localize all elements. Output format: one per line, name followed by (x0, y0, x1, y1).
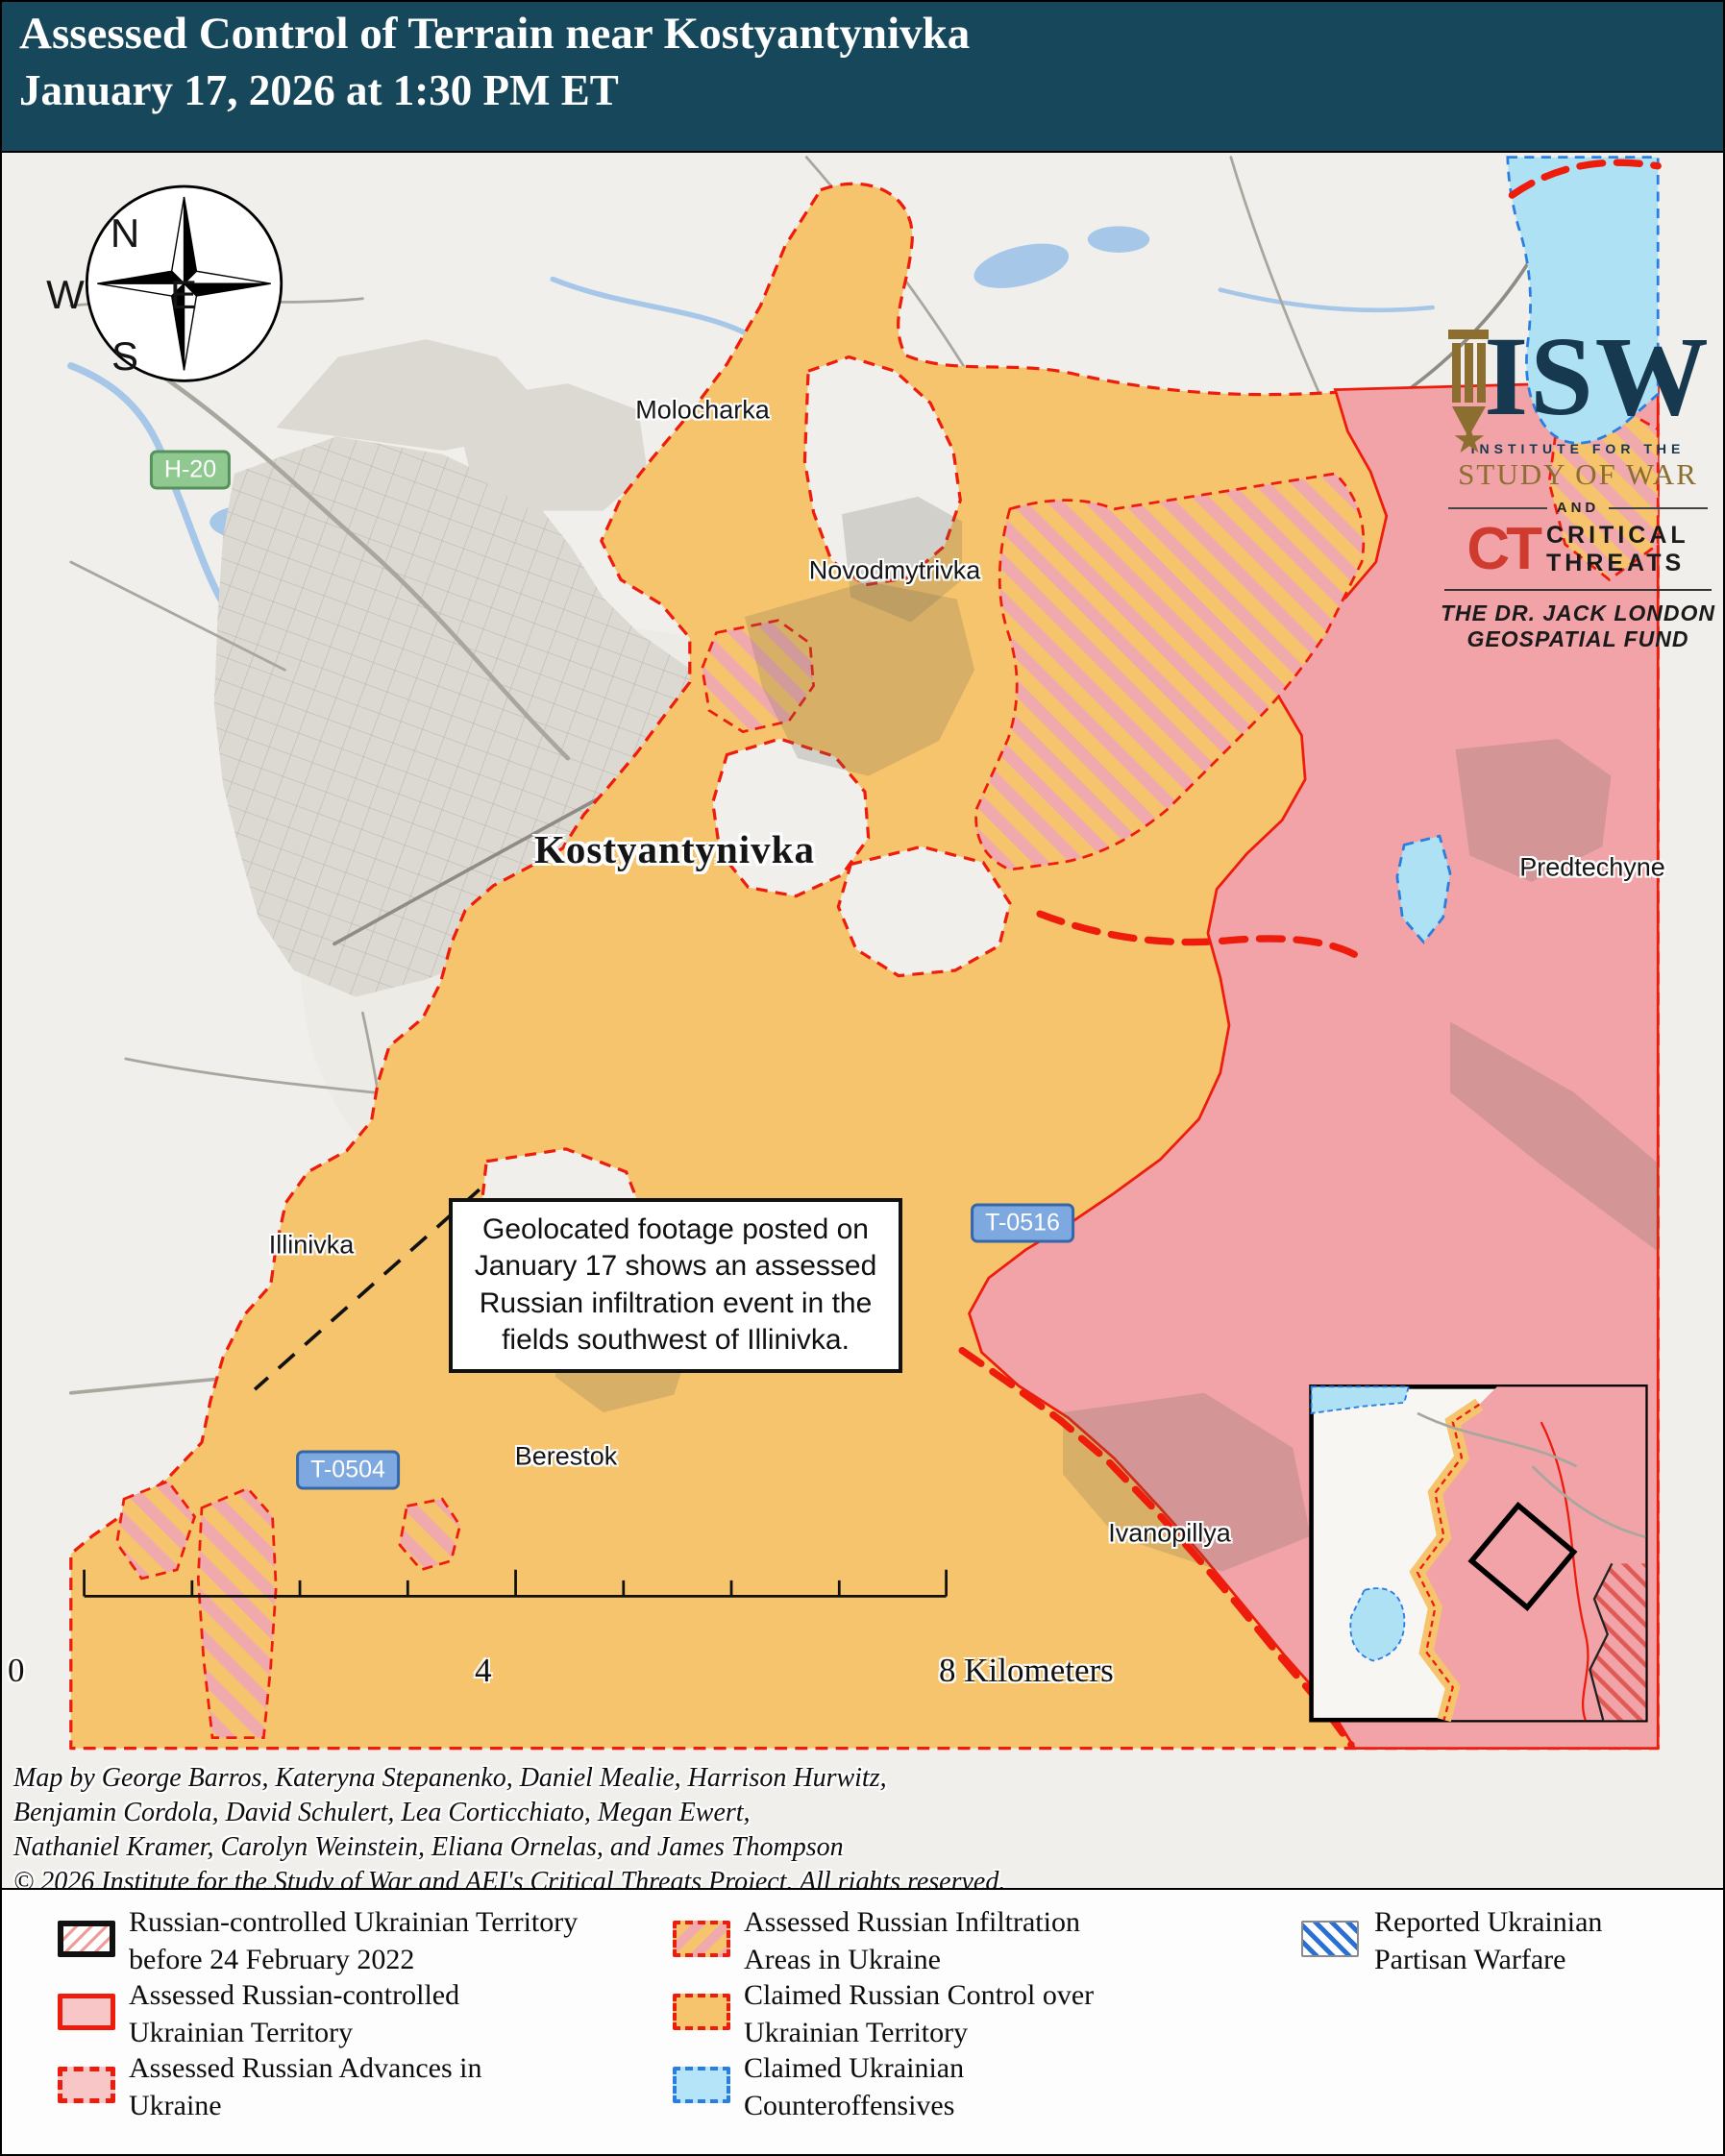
credit-line-2: Benjamin Cordola, David Schulert, Lea Co… (13, 1798, 751, 1828)
city-label-predtechyne: Predtechyne (1519, 853, 1665, 883)
legend-label-infiltration-areas: Assessed Russian Infiltration Areas in U… (744, 1903, 1147, 1978)
scale-zero: 0 (8, 1652, 25, 1690)
city-label-kostyantynivka: Kostyantynivka (534, 826, 815, 872)
legend-label-partisan-warfare: Reported Ukrainian Partisan Warfare (1374, 1903, 1701, 1978)
divider-line (1609, 507, 1708, 509)
legend-swatch-ukrainian-counteroffensives (673, 2067, 730, 2103)
road-badge-t0516: T-0516 (971, 1204, 1074, 1243)
divider-line (1448, 507, 1547, 509)
compass-west-label: W (46, 272, 85, 318)
map-title: Assessed Control of Terrain near Kostyan… (19, 8, 970, 60)
credit-line-1: Map by George Barros, Kateryna Stepanenk… (13, 1763, 887, 1794)
compass-south-label: S (111, 333, 138, 380)
divider-line (1444, 589, 1712, 591)
legend-label-pre2022-territory: Russian-controlled Ukrainian Territory b… (129, 1903, 580, 1978)
legend-swatch-russian-advances (58, 2067, 115, 2103)
legend-swatch-partisan-warfare (1301, 1921, 1359, 1957)
threats-text: THREATS (1546, 550, 1689, 577)
critical-threats-ct-icon: CT (1466, 523, 1539, 576)
legend-label-claimed-russian-control: Claimed Russian Control over Ukrainian T… (744, 1976, 1147, 2051)
city-label-illinivka: Illinivka (269, 1231, 355, 1261)
legend-label-assessed-russian-controlled: Assessed Russian-controlled Ukrainian Te… (129, 1976, 513, 2051)
road-badge-h20: H-20 (150, 451, 231, 490)
compass-north-label: N (111, 210, 139, 257)
isw-wordmark: ISW (1484, 326, 1711, 428)
annotation-callout: Geolocated footage posted on January 17 … (449, 1198, 902, 1373)
map-date: January 17, 2026 at 1:30 PM ET (19, 65, 619, 115)
main-map: N E S W Molocharka Novodmytrivka Kostyan… (2, 153, 1725, 1888)
legend-swatch-pre2022-territory (58, 1921, 115, 1957)
city-label-berestok: Berestok (515, 1442, 618, 1472)
credit-line-3: Nathaniel Kramer, Carolyn Weinstein, Eli… (13, 1832, 844, 1863)
isw-star-icon: ★ (1452, 418, 1487, 462)
and-text: AND (1557, 500, 1600, 516)
city-label-molocharka: Molocharka (635, 396, 770, 426)
scale-eight: 8 Kilometers (939, 1652, 1114, 1690)
fund-line-2: GEOSPATIAL FUND (1439, 626, 1717, 652)
legend-label-ukrainian-counteroffensives: Claimed Ukrainian Counteroffensives (744, 2049, 1147, 2124)
legend: Russian-controlled Ukrainian Territory b… (2, 1888, 1725, 2156)
isw-study-of-war-text: STUDY OF WAR (1439, 457, 1717, 492)
isw-map-page: Assessed Control of Terrain near Kostyan… (0, 0, 1725, 2156)
city-label-novodmytrivka: Novodmytrivka (809, 556, 981, 586)
road-badge-t0504: T-0504 (296, 1451, 400, 1490)
critical-text: CRITICAL (1546, 522, 1689, 550)
inset-map (1312, 1386, 1646, 1720)
city-label-ivanopillya: Ivanopillya (1108, 1519, 1231, 1549)
legend-label-russian-advances: Assessed Russian Advances in Ukraine (129, 2049, 552, 2124)
fund-line-1: THE DR. JACK LONDON (1439, 600, 1717, 626)
compass-east-label: E (170, 272, 197, 318)
header-bar: Assessed Control of Terrain near Kostyan… (2, 2, 1725, 153)
isw-ct-logo: ISW ★ INSTITUTE FOR THE STUDY OF WAR AND… (1439, 326, 1717, 652)
legend-swatch-infiltration-areas (673, 1921, 730, 1957)
legend-swatch-claimed-russian-control (673, 1994, 730, 2030)
legend-swatch-assessed-russian-controlled (58, 1994, 115, 2030)
scale-four: 4 (475, 1652, 492, 1690)
